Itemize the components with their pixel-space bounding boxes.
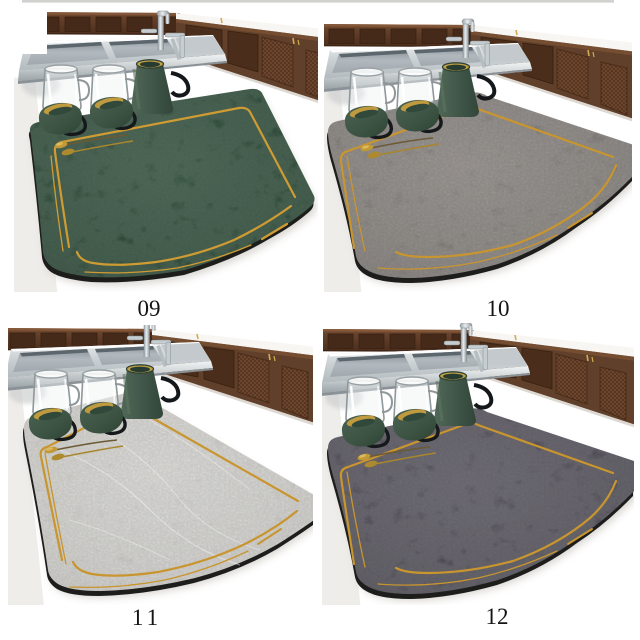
svg-text:10: 10 (487, 296, 510, 321)
svg-text:09: 09 (138, 296, 161, 321)
svg-text:11: 11 (132, 605, 162, 630)
svg-text:12: 12 (486, 604, 509, 629)
